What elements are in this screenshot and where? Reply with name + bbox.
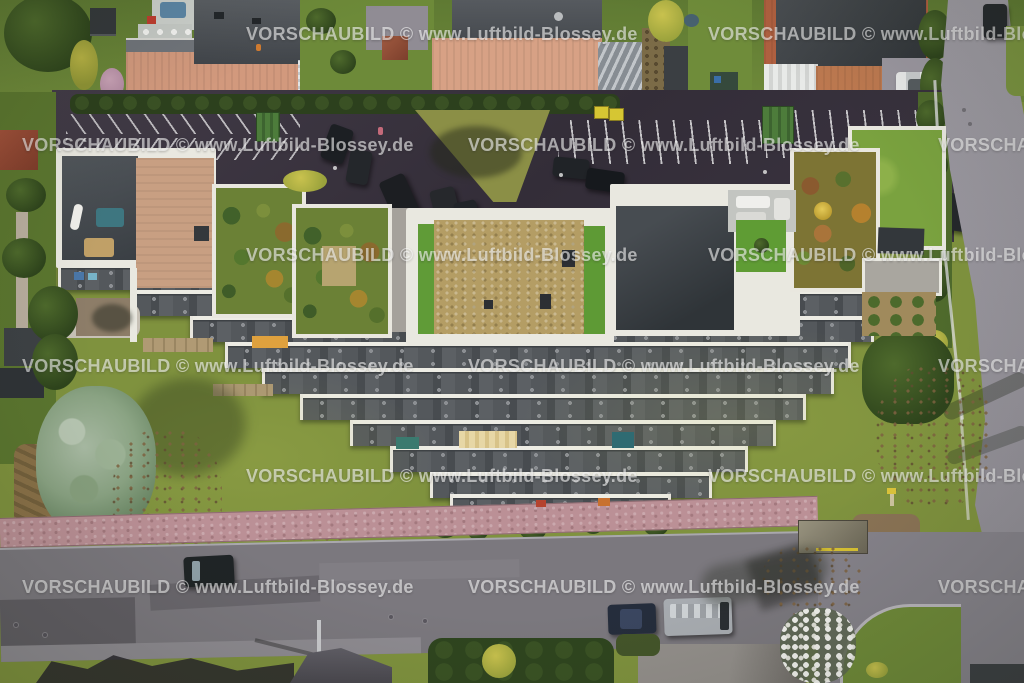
conservatory-glass-roof [598, 42, 644, 94]
watermark-text: VORSCHAUBILD © www.Luftbild-Blossey.de [246, 245, 638, 266]
watermark-text: VORSCHAUBILD © www.Luftbild-Blossey.de [246, 24, 638, 45]
manhole [13, 622, 19, 628]
garden-pond [684, 14, 699, 27]
garden-bush [2, 238, 46, 278]
gravel-flat-roof [434, 220, 584, 334]
blue-terrace-item [88, 273, 97, 280]
person-on-roof [256, 44, 261, 51]
manhole [962, 108, 966, 112]
red-parasol [536, 500, 546, 507]
watermark-text: VORSCHAUBILD © www.Luftbild-Blossey.de [246, 466, 638, 487]
parked-car [552, 156, 590, 180]
roof-vent [484, 300, 493, 309]
roof-vent [540, 294, 551, 309]
right-wing-slate-roof [616, 206, 734, 330]
aerial-photo: VORSCHAUBILD © www.Luftbild-Blossey.de V… [0, 0, 1024, 683]
yellow-hedge [648, 0, 684, 42]
watermark-text: VORSCHAUBILD © www.Luftbild-Blossey.de [468, 135, 860, 156]
van-roof [670, 604, 722, 618]
teal-awning [612, 432, 634, 448]
watermark-text: VORSCHAUBILD © www.Luftbild-Blossey.de [708, 24, 1024, 45]
watermark-text: VORSCHAUBILD © www.Luftbild-Blossey.de [938, 135, 1024, 156]
garden-bush [6, 178, 46, 212]
west-parapet-edge [130, 268, 137, 342]
garden-bush [330, 50, 356, 74]
yellow-conifer [70, 40, 98, 90]
island-flowers [866, 662, 888, 678]
magnolia-tree [780, 608, 856, 683]
watermark-text: VORSCHAUBILD © www.Luftbild-Blossey.de [708, 466, 1024, 487]
garden-shed [90, 8, 116, 36]
lamp-post [559, 173, 563, 177]
outdoor-sofa [736, 196, 770, 208]
teal-tarp [96, 208, 124, 227]
corner-dark-bottom-right [970, 664, 1024, 683]
yellow-sign [887, 488, 896, 494]
cream-awning [459, 431, 517, 448]
blue-tarp [714, 76, 721, 83]
manhole [968, 122, 972, 126]
manhole [42, 632, 48, 638]
manhole [422, 618, 428, 624]
watermark-text: VORSCHAUBILD © www.Luftbild-Blossey.de [708, 245, 1024, 266]
yellow-container [594, 106, 609, 119]
turf-strip [584, 226, 605, 334]
turf-strip [418, 224, 435, 334]
swimming-pool [160, 2, 186, 18]
manhole [388, 614, 394, 620]
yellow-parasol [814, 202, 832, 220]
roof-garden-strip [616, 634, 660, 656]
watermark-text: VORSCHAUBILD © www.Luftbild-Blossey.de [22, 577, 414, 598]
yellow-flowering-bush [482, 644, 516, 678]
orange-furniture [598, 498, 610, 506]
watermark-text: VORSCHAUBILD © www.Luftbild-Blossey.de [22, 356, 414, 377]
watermark-text: VORSCHAUBILD © www.Luftbild-Blossey.de [468, 577, 860, 598]
teal-tarp [396, 437, 419, 449]
watermark-text: VORSCHAUBILD © www.Luftbild-Blossey.de [938, 577, 1024, 598]
bottom-hedge [428, 638, 614, 683]
roof-vent [194, 226, 209, 241]
orange-awning [252, 336, 288, 348]
satellite-dish [554, 12, 563, 21]
watermark-text: VORSCHAUBILD © www.Luftbild-Blossey.de [468, 356, 860, 377]
roof-skylight [214, 12, 224, 19]
watermark-text: VORSCHAUBILD © www.Luftbild-Blossey.de [938, 356, 1024, 377]
yellow-sign-post [890, 492, 894, 506]
yellow-container [609, 108, 624, 121]
outdoor-table [774, 198, 790, 220]
courtyard-shadow [92, 304, 132, 332]
roof-deck-paved [136, 158, 214, 288]
blue-terrace-item [74, 272, 84, 280]
lamp-post [763, 170, 767, 174]
car-roof [620, 609, 642, 629]
person-pink [378, 127, 383, 135]
garden-beds [862, 292, 936, 336]
van-windshield [720, 602, 729, 630]
yellow-bushes [283, 170, 327, 192]
tan-mat [84, 238, 114, 257]
watermark-text: VORSCHAUBILD © www.Luftbild-Blossey.de [22, 135, 414, 156]
lamp-post [333, 166, 337, 170]
house-b-tile-roof [432, 38, 602, 98]
